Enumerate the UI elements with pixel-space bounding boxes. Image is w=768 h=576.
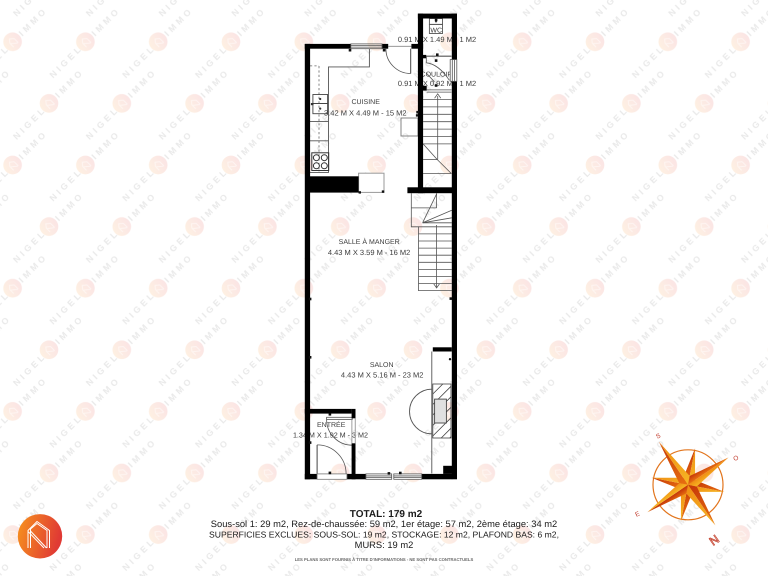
svg-text:4.43 M X 5.16 M - 23 M2: 4.43 M X 5.16 M - 23 M2 <box>341 370 424 379</box>
svg-text:CUISINE: CUISINE <box>351 99 380 106</box>
svg-text:SUPERFICIES EXCLUES: SOUS-SOL:: SUPERFICIES EXCLUES: SOUS-SOL: 19 m2, ST… <box>209 530 559 540</box>
svg-text:1.34 M X 1.92 M - 3 M2: 1.34 M X 1.92 M - 3 M2 <box>293 431 368 440</box>
svg-text:SALLE À MANGER: SALLE À MANGER <box>339 237 400 246</box>
svg-text:ENTRÉE: ENTRÉE <box>317 420 346 429</box>
svg-text:LES PLANS SONT FOURNIS À TITRE: LES PLANS SONT FOURNIS À TITRE D'INFORMA… <box>295 557 474 562</box>
svg-text:Sous-sol 1: 29 m2, Rez-de-chau: Sous-sol 1: 29 m2, Rez-de-chaussée: 59 m… <box>211 519 557 529</box>
svg-text:3.42 M X 4.49 M - 15 M2: 3.42 M X 4.49 M - 15 M2 <box>324 108 407 117</box>
svg-text:SALON: SALON <box>370 362 394 369</box>
svg-text:4.43 M X 3.59 M - 16 M2: 4.43 M X 3.59 M - 16 M2 <box>328 248 411 257</box>
svg-text:0.91 M X 1.49 M - 1 M2: 0.91 M X 1.49 M - 1 M2 <box>398 35 476 44</box>
svg-text:MURS: 19 m2: MURS: 19 m2 <box>355 540 414 550</box>
